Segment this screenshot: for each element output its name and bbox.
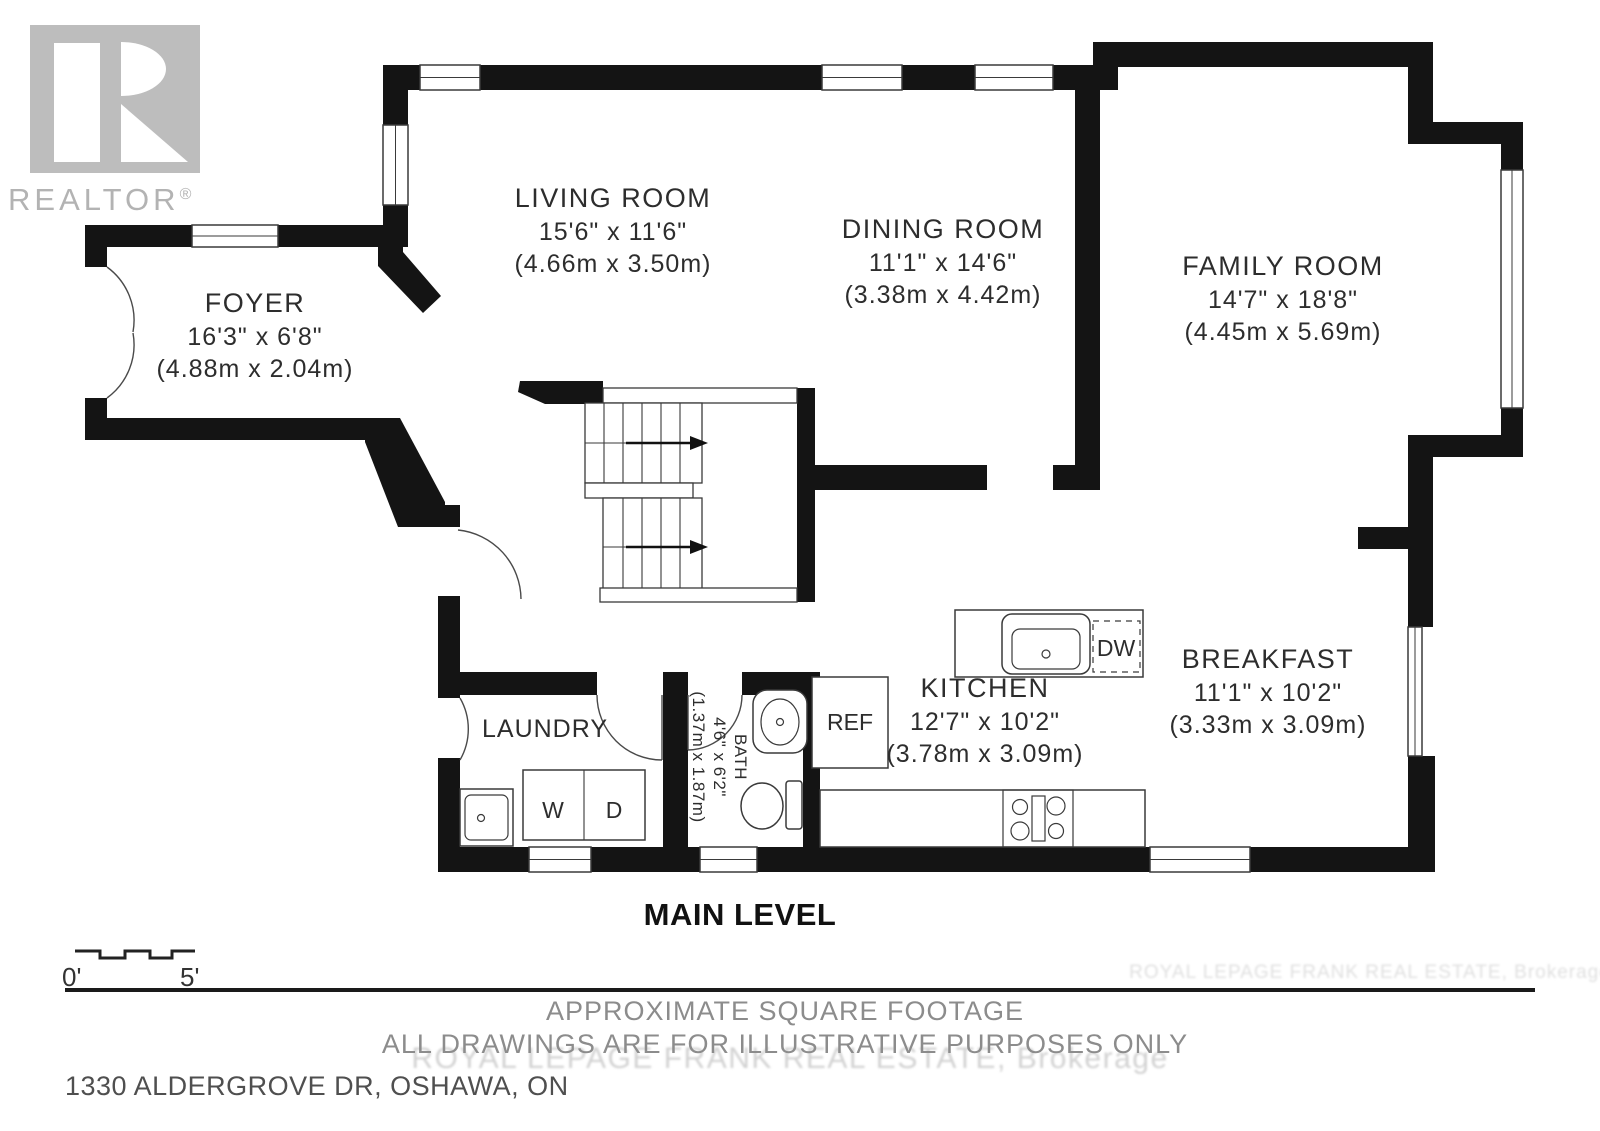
stair-stringer-top [603, 388, 797, 403]
wall-segment [1093, 42, 1433, 67]
footer-note-line1: APPROXIMATE SQUARE FOOTAGE [546, 996, 1024, 1026]
wall-segment [398, 505, 460, 527]
room-imperial: 11'1" x 10'2" [1194, 679, 1342, 707]
laundry-side-door-arc [460, 698, 468, 760]
wall-segment [1501, 122, 1523, 170]
scale-bar-line [75, 951, 195, 958]
refrigerator-label: REF [827, 709, 873, 735]
footer-note-line2: ALL DRAWINGS ARE FOR ILLUSTRATIVE PURPOS… [382, 1029, 1188, 1059]
property-address: 1330 ALDERGROVE DR, OSHAWA, ON [65, 1071, 569, 1101]
entry-door-arc [107, 333, 134, 398]
dryer-label: D [606, 797, 623, 823]
wall-segment [378, 242, 441, 313]
stair-landing [585, 483, 693, 498]
room-name: DINING ROOM [842, 214, 1045, 244]
dining-room-label: DINING ROOM 11'1" x 14'6" (3.38m x 4.42m… [842, 214, 1045, 309]
watermark-fragment: ROYAL LEPAGE FRANK REAL ESTATE, Brokerag… [1129, 962, 1600, 983]
wall-segment [797, 388, 815, 602]
foyer-label: FOYER 16'3" x 6'8" (4.88m x 2.04m) [156, 288, 353, 383]
wall-segment [383, 205, 408, 247]
toilet-bowl [741, 783, 783, 829]
room-imperial: 16'3" x 6'8" [187, 323, 322, 351]
window [975, 65, 1053, 90]
laundry-sink [460, 789, 513, 846]
room-metric: (3.33m x 3.09m) [1169, 711, 1366, 739]
room-imperial: 4'6" x 6'2" [710, 717, 729, 797]
laundry-label: LAUNDRY [482, 715, 608, 743]
room-name: KITCHEN [920, 673, 1049, 703]
wall-segment [518, 381, 603, 404]
window [420, 65, 480, 90]
closet-door-arc [458, 530, 521, 599]
room-imperial: 15'6" x 11'6" [539, 218, 687, 246]
room-metric: (3.78m x 3.09m) [886, 740, 1083, 768]
room-imperial: 12'7" x 10'2" [910, 708, 1060, 736]
window [1501, 170, 1523, 408]
window [529, 847, 591, 872]
toilet-tank [786, 781, 802, 829]
room-imperial: 14'7" x 18'8" [1208, 286, 1358, 314]
footer: APPROXIMATE SQUARE FOOTAGE ROYAL LEPAGE … [65, 996, 1188, 1101]
dishwasher-label: DW [1097, 635, 1136, 661]
scale-bar: 0' 5' [62, 951, 199, 992]
wall-segment [1075, 90, 1100, 465]
room-imperial: 11'1" x 14'6" [869, 249, 1017, 277]
stair-flight-lower [603, 498, 702, 590]
wall-segment [663, 672, 688, 847]
staircase [585, 388, 797, 602]
kitchen-sink [1002, 614, 1090, 674]
room-name: BATH [731, 734, 750, 780]
wall-segment [85, 418, 367, 440]
footer-divider [65, 988, 1535, 992]
level-title: MAIN LEVEL [644, 897, 837, 932]
stair-stringer-bottom [600, 588, 797, 602]
kitchen-counter [820, 790, 1145, 847]
living-room-label: LIVING ROOM 15'6" x 11'6" (4.66m x 3.50m… [514, 183, 711, 278]
wall-segment [85, 225, 107, 267]
breakfast-label: BREAKFAST 11'1" x 10'2" (3.33m x 3.09m) [1169, 644, 1366, 739]
family-room-label: FAMILY ROOM 14'7" x 18'8" (4.45m x 5.69m… [1182, 251, 1384, 346]
window [1150, 847, 1250, 872]
room-metric: (4.66m x 3.50m) [514, 250, 711, 278]
scale-end-label: 5' [180, 962, 199, 992]
room-metric: (3.38m x 4.42m) [844, 281, 1041, 309]
realtor-logo-r-stem [54, 43, 100, 162]
room-name: FAMILY ROOM [1182, 251, 1384, 281]
wall-segment [438, 758, 460, 847]
wall-segment [383, 65, 408, 125]
kitchen-label: KITCHEN 12'7" x 10'2" (3.78m x 3.09m) [886, 673, 1083, 768]
window [192, 225, 278, 247]
room-metric: (1.37m x 1.87m) [689, 691, 708, 822]
window [822, 65, 902, 90]
floorplan-canvas: REALTOR® [0, 0, 1600, 1131]
wall-segment [1358, 527, 1408, 549]
wall-segment [1408, 435, 1433, 627]
realtor-logo: REALTOR® [8, 25, 200, 217]
washer-label: W [542, 797, 564, 823]
laundry-fixtures: W D [460, 770, 645, 846]
room-metric: (4.88m x 2.04m) [156, 355, 353, 383]
window [700, 847, 757, 872]
wall-segment [1053, 465, 1100, 490]
scale-start-label: 0' [62, 962, 81, 992]
realtor-wordmark: REALTOR® [8, 182, 195, 217]
room-metric: (4.45m x 5.69m) [1184, 318, 1381, 346]
entry-door-arc [107, 267, 134, 332]
wall-segment [1093, 42, 1118, 90]
room-name: FOYER [205, 288, 306, 318]
wall-segment [450, 672, 597, 695]
floorplan-page: REALTOR® [0, 0, 1600, 1131]
wall-segment [797, 465, 987, 490]
room-name: LIVING ROOM [515, 183, 712, 213]
room-name: BREAKFAST [1182, 644, 1355, 674]
window [1408, 627, 1422, 756]
window [383, 125, 408, 205]
